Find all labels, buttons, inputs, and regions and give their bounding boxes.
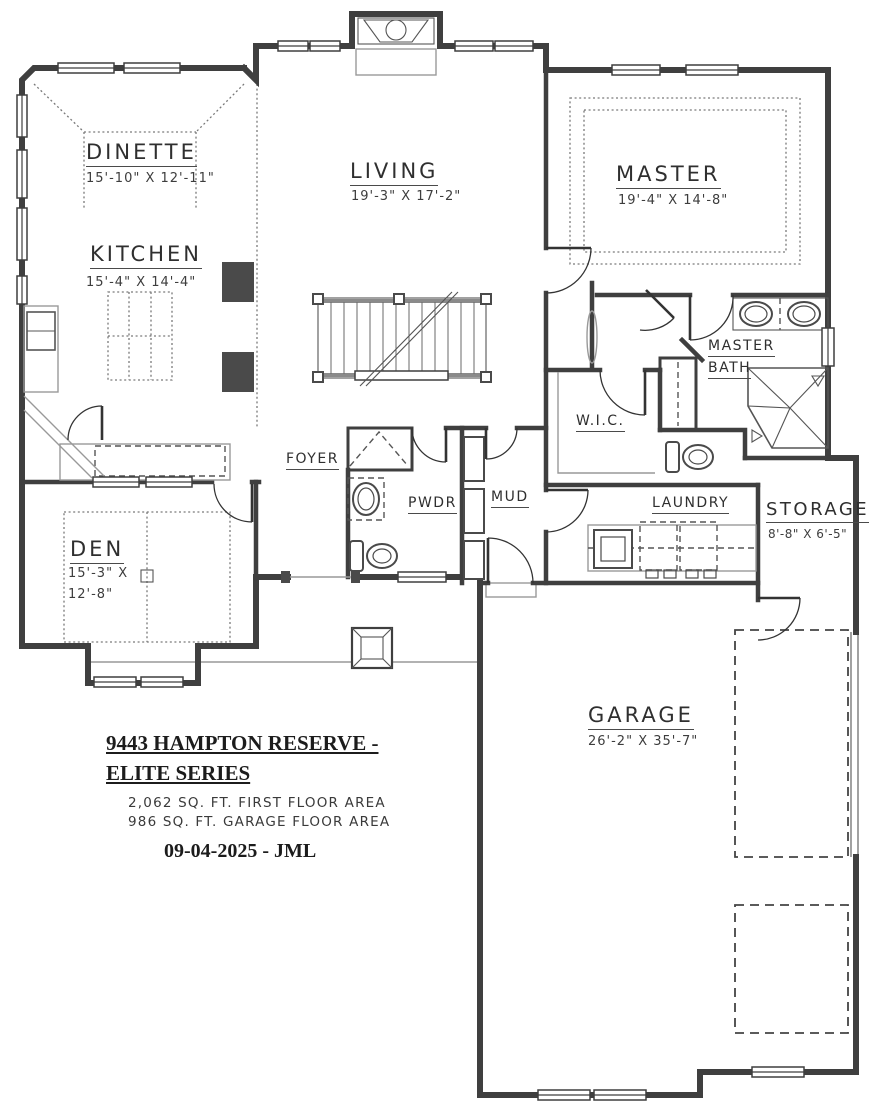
fireplace [356,18,436,75]
laundry-fixtures [588,522,756,578]
room-label-pwdr: PWDR [408,495,457,514]
room-label-foyer: FOYER [286,451,339,470]
floor-plan-drawing [0,0,890,1114]
garage-floor-area: 986 SQ. FT. GARAGE FLOOR AREA [128,814,426,830]
room-dims-master: 19'-4" X 14'-8" [618,193,728,208]
room-label-master-bath-line2: BATH [708,360,751,379]
floorplan-sheet: DINETTE 15'-10" X 12'-11" KITCHEN 15'-4"… [0,0,890,1114]
porch-column [352,628,392,668]
title-block: 9443 HAMPTON RESERVE - ELITE SERIES 2,06… [106,728,426,863]
room-label-laundry: LAUNDRY [652,495,729,514]
room-label-storage: STORAGE [766,499,869,523]
room-label-den: DEN [70,537,124,564]
room-label-master-bath-line1: MASTER [708,338,775,357]
room-label-kitchen: KITCHEN [90,242,202,269]
room-dims-den-line2: 12'-8" [68,587,113,602]
room-label-garage: GARAGE [588,703,694,730]
plan-title-line2: ELITE SERIES [106,758,426,788]
date-signature: 09-04-2025 - JML [164,840,426,863]
room-label-wic: W.I.C. [576,413,625,432]
room-label-master: MASTER [616,162,721,189]
room-dims-garage: 26'-2" X 35'-7" [588,734,698,749]
powder-room-fixtures [348,428,412,571]
room-label-living: LIVING [350,159,438,186]
kitchen-fixtures [24,262,254,480]
first-floor-area: 2,062 SQ. FT. FIRST FLOOR AREA [128,795,426,811]
plan-title-line1: 9443 HAMPTON RESERVE - [106,728,426,758]
porch-lines [90,583,536,662]
staircase [313,292,491,386]
room-dims-den-line1: 15'-3" X [68,566,128,581]
room-label-mud: MUD [491,489,529,508]
room-dims-storage: 8'-8" X 6'-5" [768,527,847,541]
room-dims-kitchen: 15'-4" X 14'-4" [86,275,196,290]
room-label-dinette: DINETTE [86,140,197,167]
room-dims-living: 19'-3" X 17'-2" [351,189,461,204]
mudroom-lockers [464,437,484,579]
garage-dashed-areas [735,630,858,1033]
room-dims-dinette: 15'-10" X 12'-11" [86,171,215,186]
